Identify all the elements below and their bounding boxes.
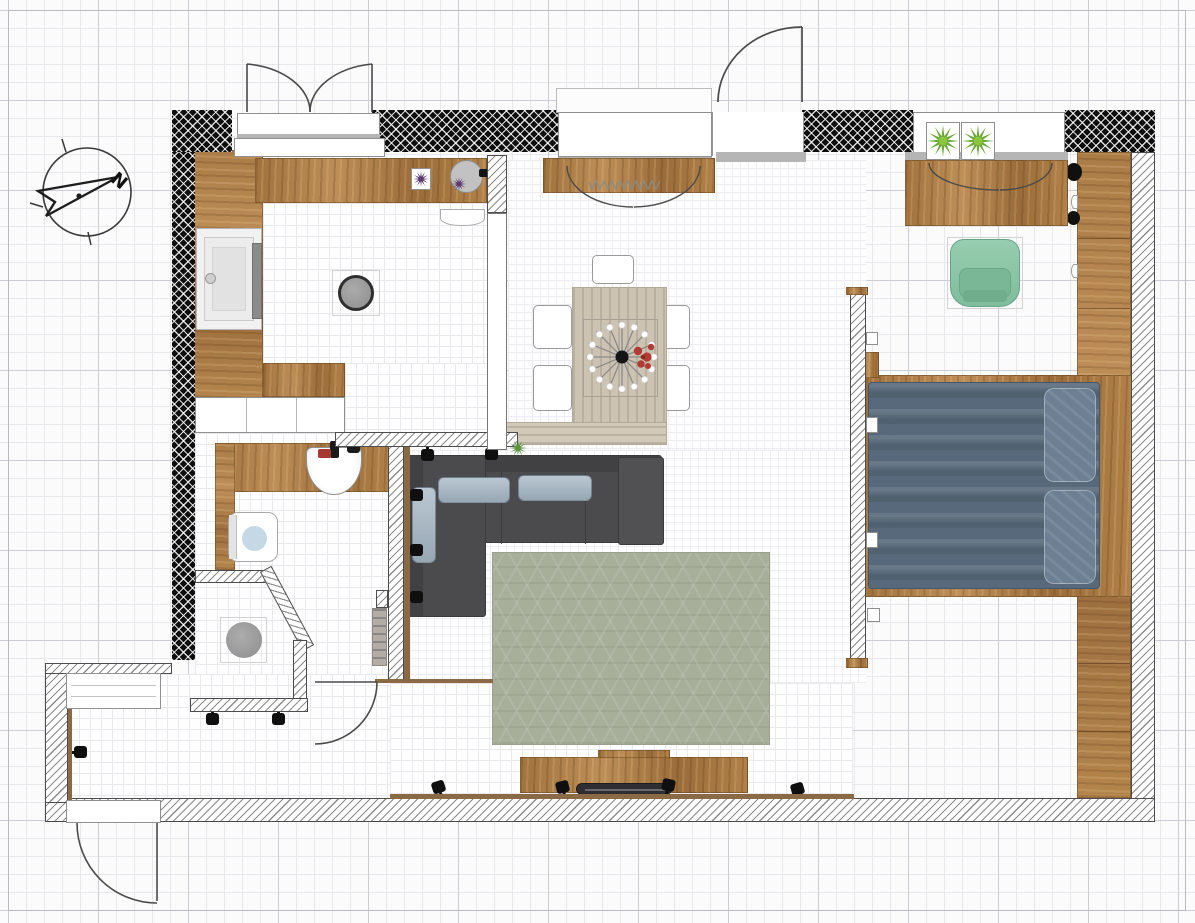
linework-overlay: N [0, 0, 1195, 923]
vestibule-door-swing[interactable] [77, 823, 157, 903]
bedroom-window-casements [929, 163, 1052, 190]
compass[interactable]: N [30, 139, 131, 245]
floor-plan-canvas[interactable]: N [0, 0, 1195, 923]
sideboard-plant-icon [509, 439, 527, 457]
entry-door-swing[interactable] [718, 27, 802, 102]
plant-center [939, 137, 948, 146]
balcony-door-swing[interactable] [247, 64, 372, 112]
bathroom-door-swing[interactable] [315, 682, 377, 744]
radiator-symbol [588, 181, 660, 189]
purple-flower-icon [413, 171, 429, 187]
purple-flower-icon [452, 177, 466, 191]
table-centerpiece [586, 321, 658, 393]
compass-tick [62, 139, 66, 152]
plant-center [974, 137, 983, 146]
compass-tick [30, 203, 43, 207]
compass-tick [88, 232, 91, 245]
compass-north-label: N [106, 168, 131, 194]
compass-center-dot [76, 193, 81, 198]
